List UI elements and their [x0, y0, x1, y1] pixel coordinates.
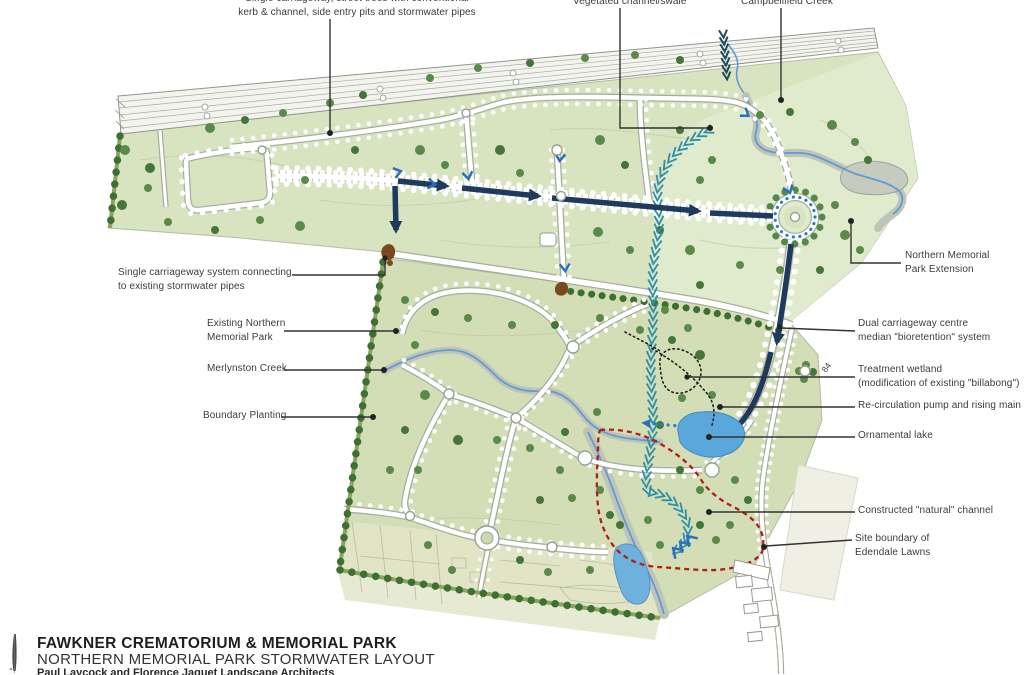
label-ornamental-lake: Ornamental lake [858, 429, 933, 443]
label-constructed-natural-channel: Constructed "natural" channel [858, 504, 993, 518]
label-existing-northern-memorial-park: Existing Northern Memorial Park [207, 317, 285, 344]
label-treatment-wetland: Treatment wetland (modification of exist… [858, 363, 1020, 390]
label-single-carriageway-street-trees: Single carriageway, street trees with co… [222, 0, 492, 19]
label-campbellfield-creek: Campbellfield Creek [741, 0, 833, 9]
label-recirculation-pump: Re-circulation pump and rising main [858, 399, 1021, 413]
plan-subtitle: NORTHERN MEMORIAL PARK STORMWATER LAYOUT [37, 651, 435, 668]
plan-architects: Paul Laycock and Florence Jaquet Landsca… [37, 667, 334, 675]
label-single-carriageway-system: Single carriageway system connecting to … [118, 266, 292, 293]
label-dual-carriageway-bioretention: Dual carriageway centre median "bioreten… [858, 317, 990, 344]
label-site-boundary-edendale: Site boundary of Edendale Lawns [855, 532, 930, 559]
ornamental-lake-shape [678, 412, 745, 457]
label-merlynston-creek: Merlynston Creek [207, 362, 287, 376]
stormwater-layout-plan: 84 Single carriageway, street trees with… [0, 0, 1024, 675]
label-northern-memorial-park-extension: Northern Memorial Park Extension [905, 249, 990, 276]
gatehouse [540, 233, 556, 246]
park-parcels [108, 52, 918, 640]
plan-note-84: 84 [819, 360, 833, 374]
label-boundary-planting: Boundary Planting [203, 409, 286, 423]
label-vegetated-channel-swale: Vegetated channel/swale [573, 0, 687, 9]
architects-logo-icon [10, 634, 17, 673]
